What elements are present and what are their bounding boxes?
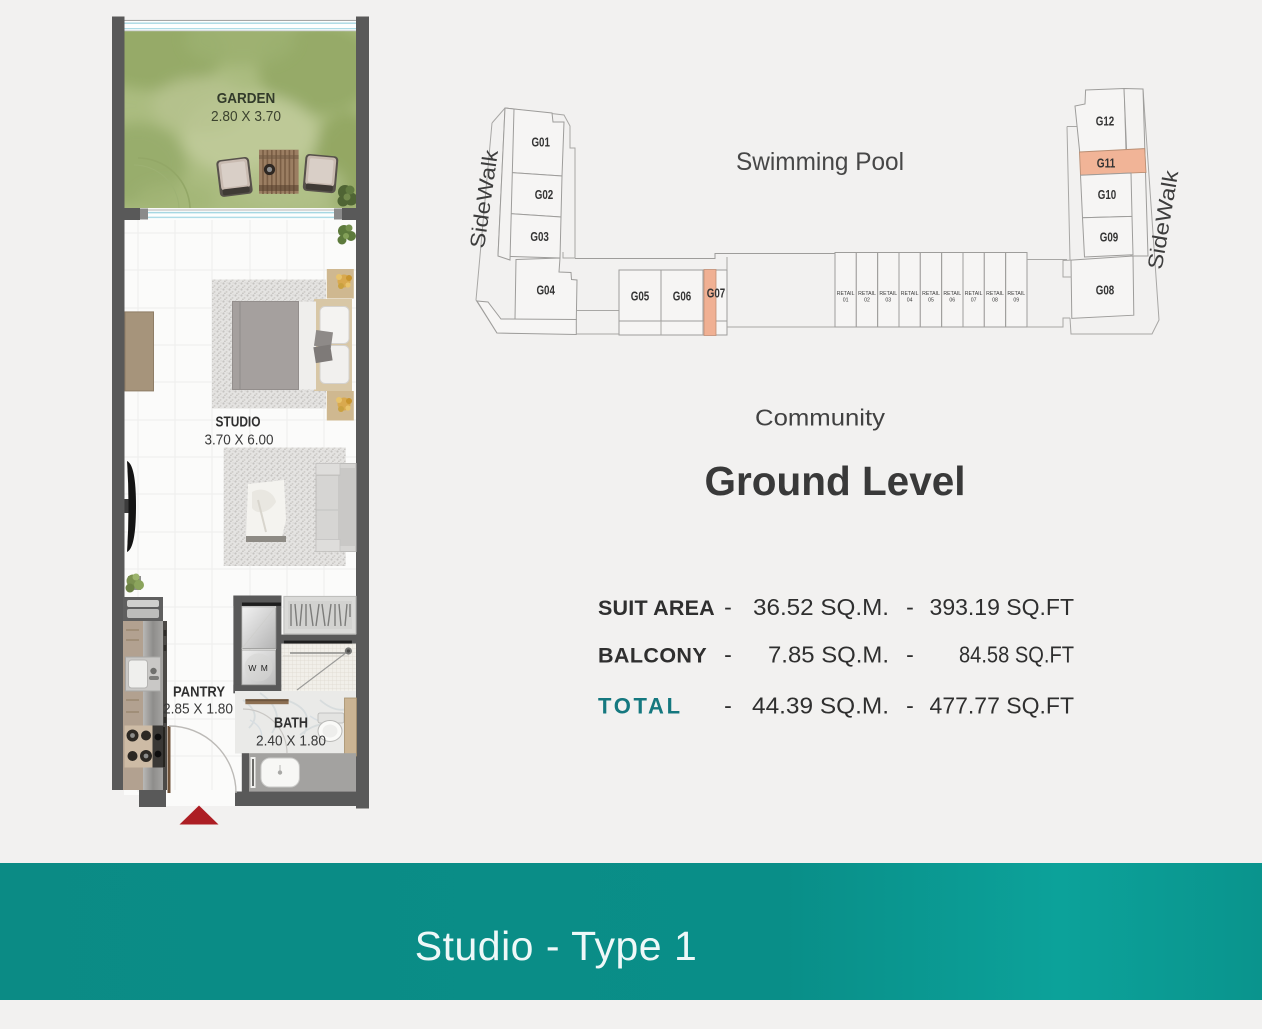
svg-text:-: - [906,642,914,668]
svg-text:2.80 X 3.70: 2.80 X 3.70 [211,109,281,125]
svg-text:G10: G10 [1098,187,1117,202]
svg-text:BATH: BATH [274,715,308,732]
svg-text:G08: G08 [1096,282,1115,297]
svg-text:RETAIL: RETAIL [922,291,940,297]
svg-text:RETAIL: RETAIL [1007,291,1025,297]
svg-text:STUDIO: STUDIO [216,414,261,431]
svg-text:Community: Community [755,405,886,431]
svg-text:RETAIL: RETAIL [858,291,876,297]
svg-text:05: 05 [928,298,934,304]
svg-text:2.85 X 1.80: 2.85 X 1.80 [163,702,233,718]
svg-text:-: - [906,693,914,719]
svg-text:SUIT AREA: SUIT AREA [598,596,715,620]
svg-text:36.52 SQ.M.: 36.52 SQ.M. [753,594,889,620]
svg-text:08: 08 [992,298,998,304]
svg-text:BALCONY: BALCONY [598,644,707,668]
svg-text:RETAIL: RETAIL [943,291,961,297]
svg-text:W M: W M [248,663,268,673]
svg-text:RETAIL: RETAIL [965,291,983,297]
svg-text:2.40 X 1.80: 2.40 X 1.80 [256,734,326,750]
svg-text:RETAIL: RETAIL [986,291,1004,297]
svg-text:RETAIL: RETAIL [901,291,919,297]
svg-text:-: - [724,693,732,719]
svg-text:84.58 SQ.FT: 84.58 SQ.FT [959,642,1074,668]
svg-text:-: - [906,594,914,620]
svg-text:-: - [724,642,732,668]
svg-text:07: 07 [971,298,977,304]
svg-text:RETAIL: RETAIL [837,291,855,297]
svg-text:477.77 SQ.FT: 477.77 SQ.FT [930,693,1074,719]
svg-text:393.19 SQ.FT: 393.19 SQ.FT [930,594,1074,620]
svg-text:G09: G09 [1100,229,1119,244]
svg-text:TOTAL: TOTAL [598,694,683,719]
svg-text:Ground Level: Ground Level [705,458,966,504]
svg-text:09: 09 [1013,298,1019,304]
svg-text:G07: G07 [707,286,726,301]
svg-text:06: 06 [949,298,955,304]
svg-text:04: 04 [907,298,913,304]
svg-text:44.39 SQ.M.: 44.39 SQ.M. [752,693,889,719]
svg-text:RETAIL: RETAIL [879,291,897,297]
svg-text:G02: G02 [535,187,554,202]
svg-text:GARDEN: GARDEN [217,90,276,107]
svg-text:G05: G05 [631,289,650,304]
svg-text:PANTRY: PANTRY [173,684,225,701]
svg-text:01: 01 [843,298,849,304]
svg-text:7.85 SQ.M.: 7.85 SQ.M. [768,642,889,668]
svg-text:3.70 X 6.00: 3.70 X 6.00 [205,433,274,449]
svg-text:02: 02 [864,298,870,304]
svg-text:-: - [724,594,732,620]
svg-text:03: 03 [885,298,891,304]
svg-text:Swimming Pool: Swimming Pool [736,148,904,176]
svg-text:G12: G12 [1096,114,1115,129]
svg-text:G01: G01 [531,135,550,150]
svg-text:G03: G03 [530,229,549,244]
svg-text:G04: G04 [536,283,555,298]
svg-text:G11: G11 [1097,156,1116,171]
svg-text:G06: G06 [673,289,692,304]
